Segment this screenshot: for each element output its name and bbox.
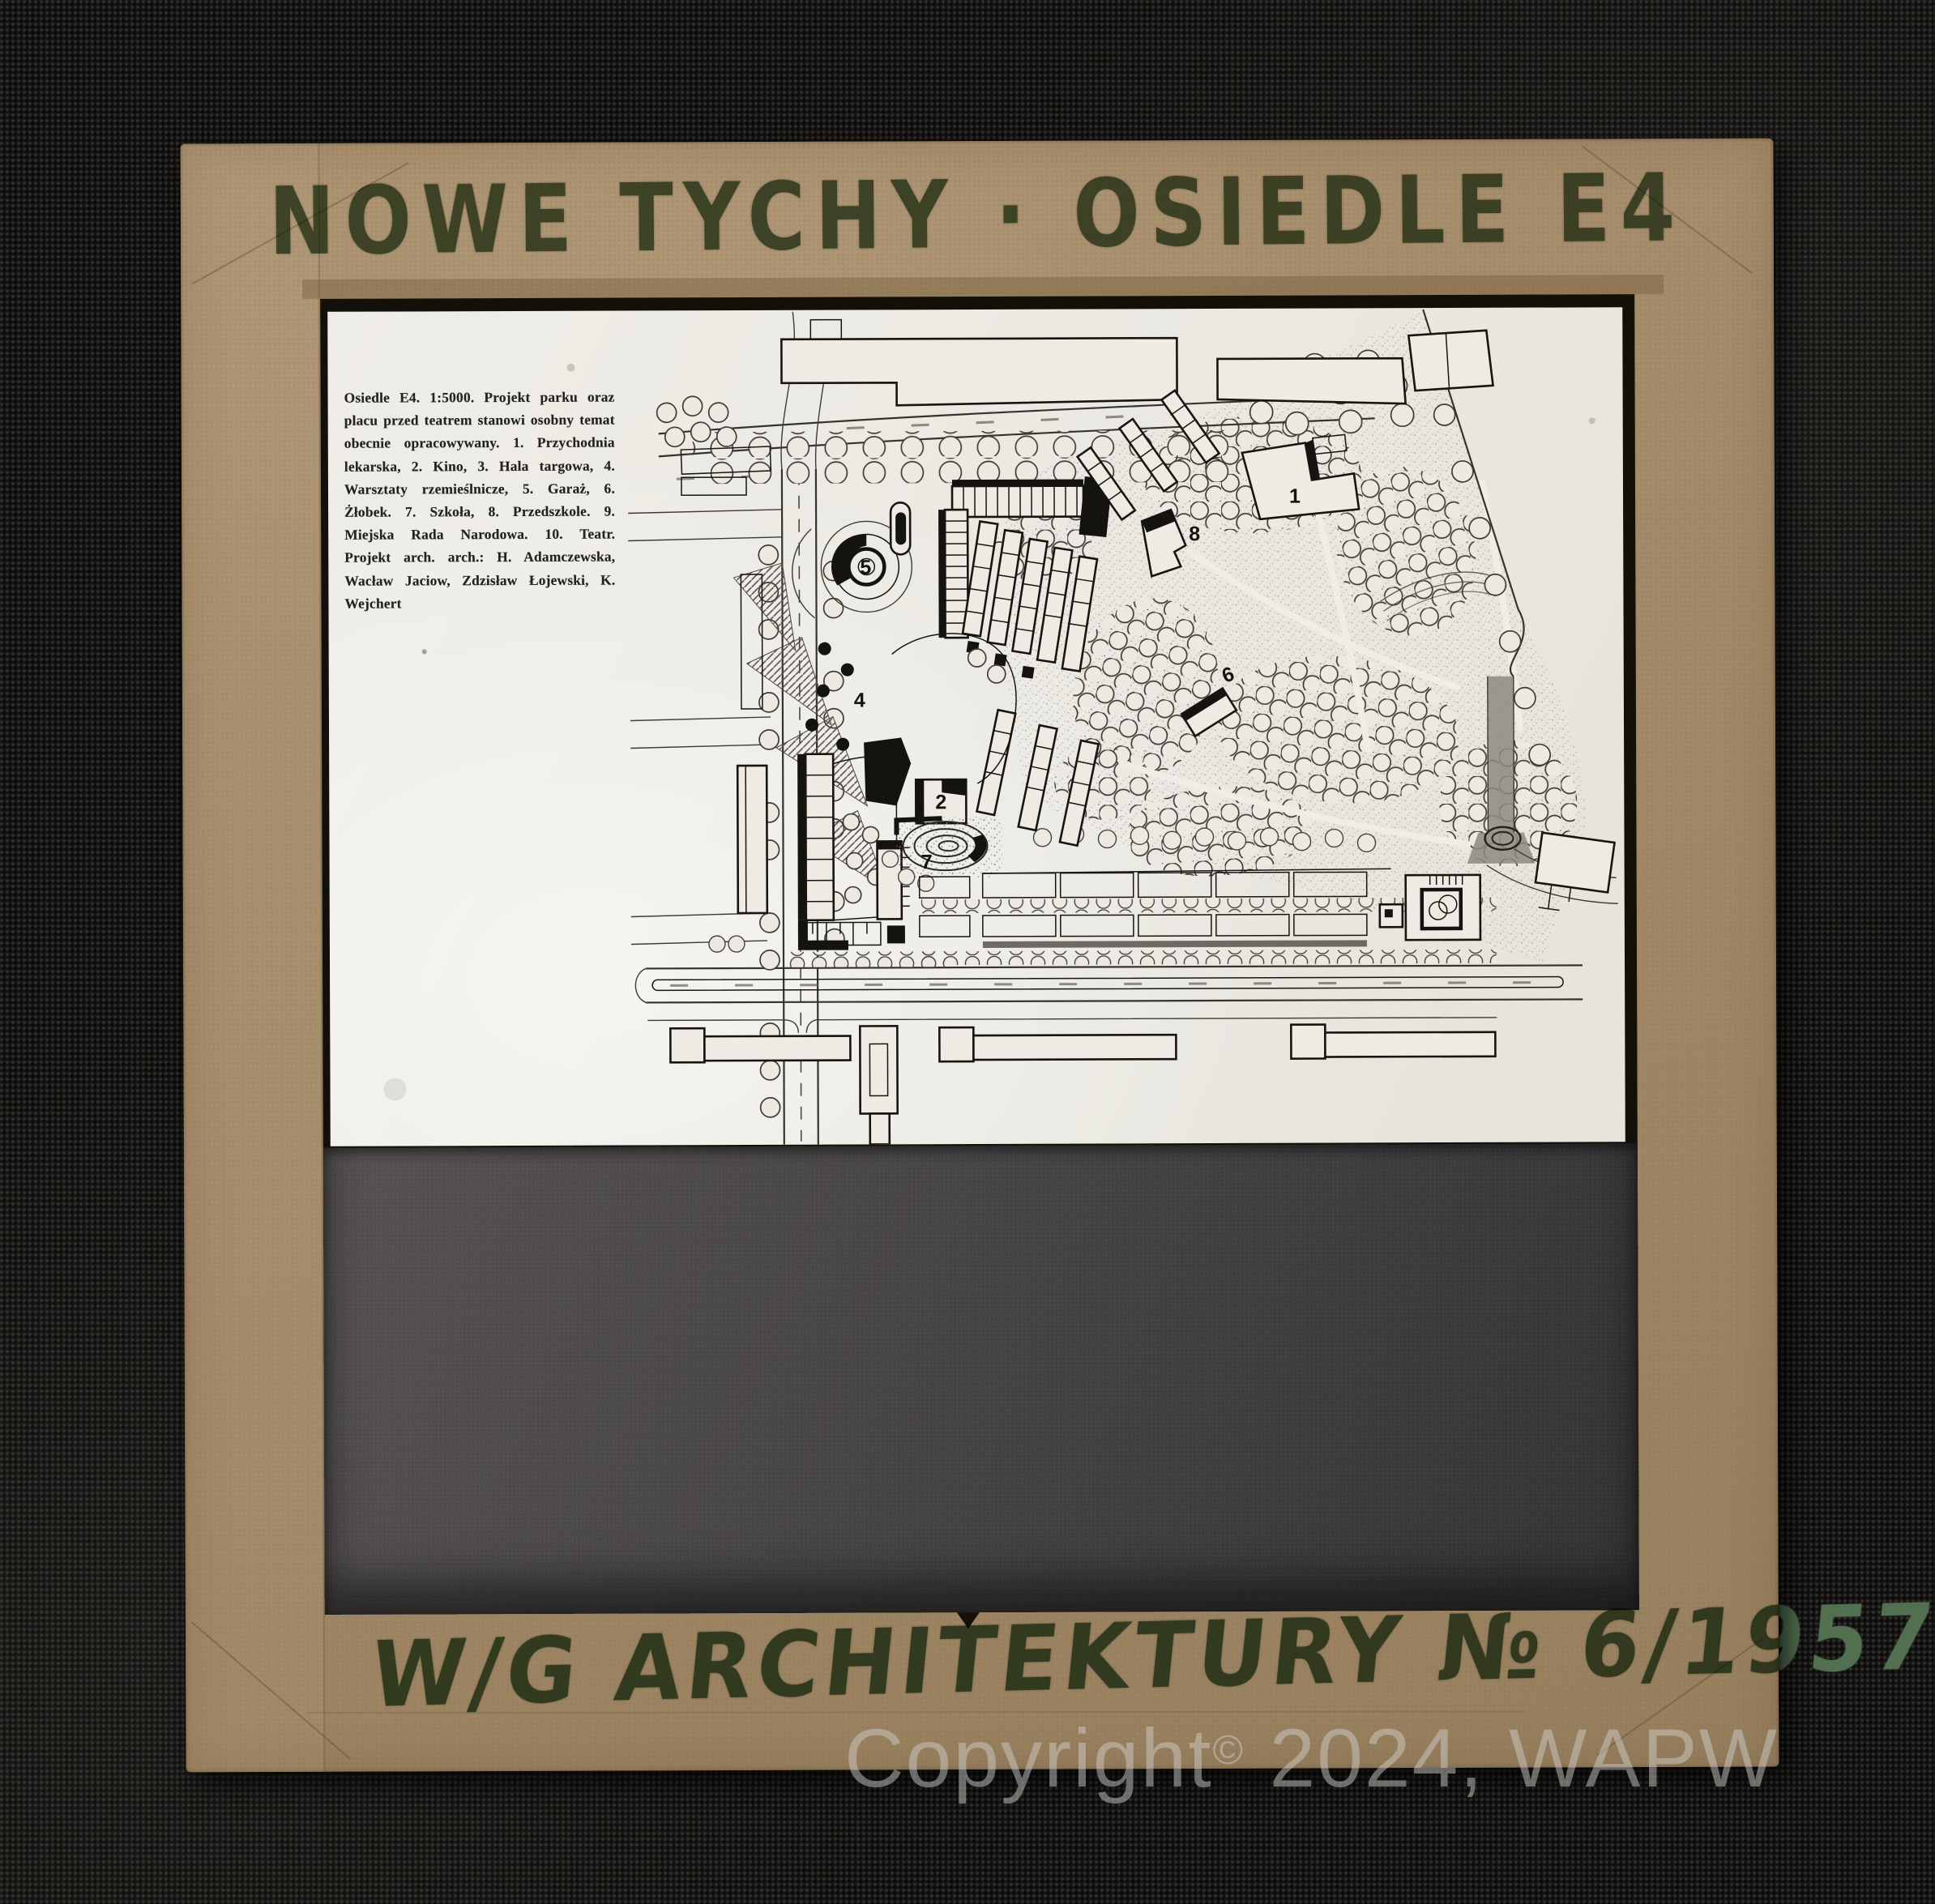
label-kino: 2 bbox=[935, 791, 946, 813]
label-przedszkole: 8 bbox=[1189, 523, 1200, 545]
mount-left-flap bbox=[180, 143, 325, 1773]
cardboard-mount: NOWE TYCHY · OSIEDLE E4 Osiedle E4. 1:50… bbox=[180, 139, 1779, 1773]
label-szkola: 7 bbox=[921, 851, 933, 873]
copyright-watermark: Copyright© 2024, WAPW bbox=[844, 1711, 1779, 1806]
label-warsztaty: 4 bbox=[854, 689, 865, 711]
site-plan-photo: Osiedle E4. 1:5000. Projekt parku oraz p… bbox=[327, 307, 1625, 1146]
watermark-text: Copyright bbox=[844, 1712, 1213, 1804]
label-garaz: 5 bbox=[860, 556, 871, 578]
pond bbox=[882, 817, 1002, 892]
watermark-symbol: © bbox=[1213, 1727, 1245, 1773]
label-przychodnia: 1 bbox=[1289, 485, 1301, 508]
allotment-plots-2 bbox=[920, 914, 1367, 937]
slide-window: Osiedle E4. 1:5000. Projekt parku oraz p… bbox=[320, 294, 1639, 1615]
dark-paper-mask bbox=[323, 1143, 1639, 1615]
site-plan-drawing: 5 1 4 6 2 7 8 bbox=[327, 307, 1625, 1146]
watermark-year: 2024, WAPW bbox=[1245, 1712, 1779, 1804]
tree-cluster-corner bbox=[657, 396, 737, 446]
slide-title-handwriting: NOWE TYCHY · OSIEDLE E4 bbox=[276, 135, 1678, 293]
buildings-south bbox=[670, 1024, 1496, 1146]
archival-slide-scan: NOWE TYCHY · OSIEDLE E4 Osiedle E4. 1:50… bbox=[0, 0, 1935, 1904]
